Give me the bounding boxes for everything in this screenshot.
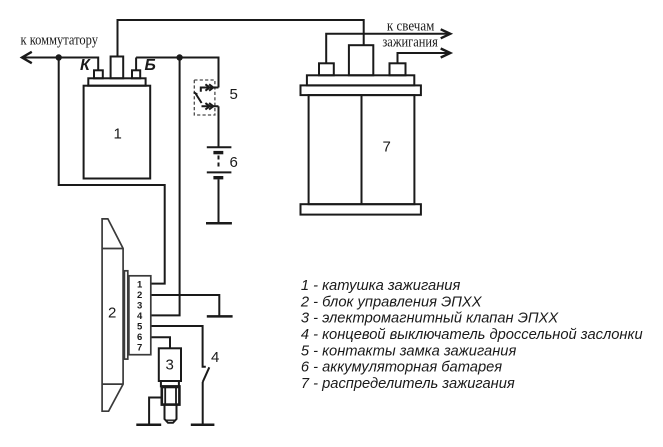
svg-text:2: 2 [108, 305, 116, 322]
svg-text:К: К [80, 57, 91, 74]
svg-text:3: 3 [137, 301, 142, 312]
svg-text:7 - распределитель зажигания: 7 - распределитель зажигания [301, 376, 515, 392]
svg-text:1: 1 [114, 126, 122, 143]
svg-text:6: 6 [230, 154, 238, 171]
svg-text:5: 5 [230, 86, 238, 103]
svg-text:к свечам: к свечам [387, 19, 435, 35]
svg-text:1: 1 [137, 280, 143, 291]
svg-text:5: 5 [137, 322, 143, 333]
svg-text:6 - аккумуляторная батарея: 6 - аккумуляторная батарея [301, 360, 502, 376]
svg-text:4 - концевой выключатель дросс: 4 - концевой выключатель дроссельной зас… [301, 327, 643, 343]
svg-text:4: 4 [211, 349, 219, 366]
svg-text:7: 7 [137, 343, 142, 354]
svg-text:1 - катушка зажигания: 1 - катушка зажигания [301, 278, 461, 294]
svg-text:3: 3 [166, 357, 174, 374]
svg-text:2: 2 [137, 290, 142, 301]
svg-text:7: 7 [383, 139, 391, 156]
svg-text:5 - контакты замка зажигания: 5 - контакты замка зажигания [301, 343, 517, 359]
svg-text:зажигания: зажигания [382, 34, 438, 50]
svg-text:6: 6 [137, 332, 142, 343]
svg-text:3 - электромагнитный клапан ЭП: 3 - электромагнитный клапан ЭПХХ [301, 311, 559, 327]
svg-text:2 - блок управления ЭПХХ: 2 - блок управления ЭПХХ [300, 294, 483, 310]
svg-text:Б: Б [145, 57, 156, 74]
svg-text:4: 4 [137, 311, 143, 322]
svg-text:к коммутатору: к коммутатору [21, 33, 99, 49]
